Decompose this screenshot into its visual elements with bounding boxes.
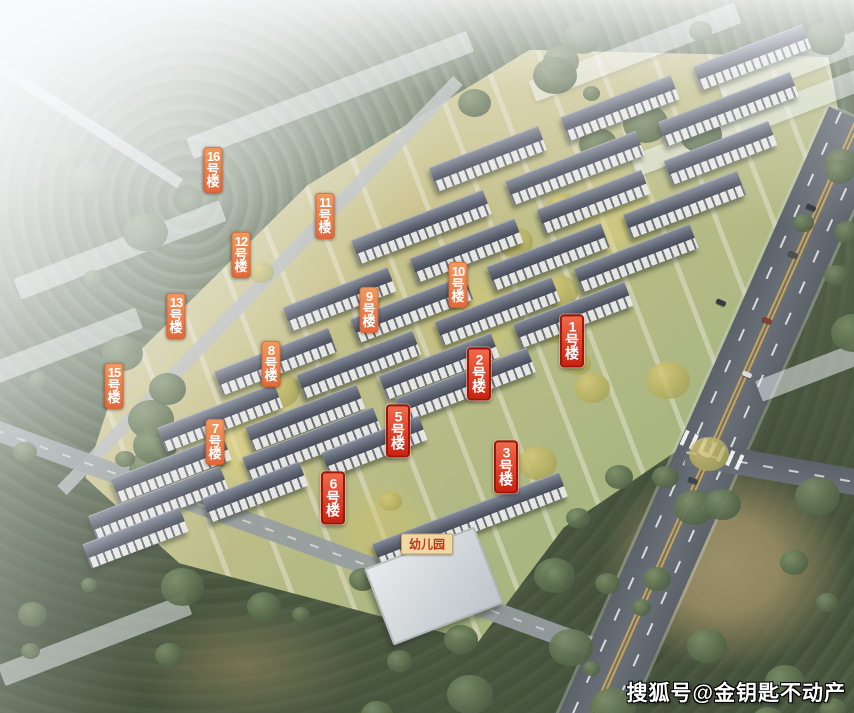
building-label-3: 3号楼: [494, 440, 518, 493]
kindergarten-label: 幼儿园: [401, 534, 453, 555]
watermark: 搜狐号@金钥匙不动产: [627, 677, 846, 707]
building-label-9: 9号楼: [359, 287, 378, 333]
building-label-2: 2号楼: [467, 347, 491, 400]
building-label-13: 13号楼: [166, 293, 185, 339]
building-labels-layer: 16号楼11号楼12号楼10号楼13号楼9号楼8号楼15号楼7号楼1号楼2号楼5…: [0, 0, 854, 713]
building-label-7: 7号楼: [205, 419, 224, 465]
building-label-16: 16号楼: [203, 147, 222, 193]
building-label-6: 6号楼: [321, 471, 345, 524]
building-label-8: 8号楼: [261, 341, 280, 387]
building-label-15: 15号楼: [104, 363, 123, 409]
building-label-1: 1号楼: [560, 314, 584, 367]
building-label-10: 10号楼: [448, 262, 467, 308]
building-label-5: 5号楼: [386, 404, 410, 457]
building-label-11: 11号楼: [315, 193, 334, 239]
building-label-12: 12号楼: [231, 232, 250, 278]
site-plan-rendering: 16号楼11号楼12号楼10号楼13号楼9号楼8号楼15号楼7号楼1号楼2号楼5…: [0, 0, 854, 713]
